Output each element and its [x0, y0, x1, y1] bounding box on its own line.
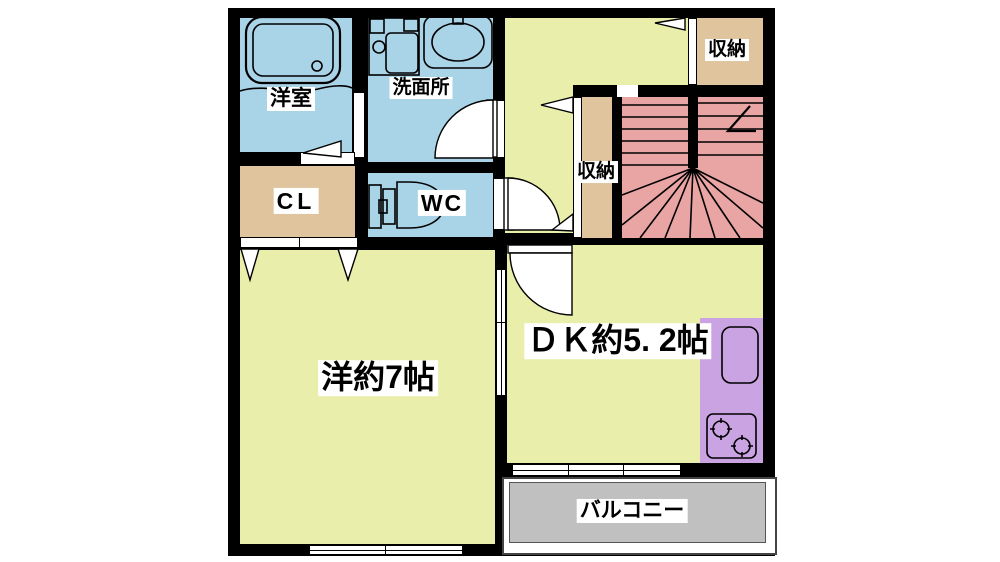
room-label-wc: WC [418, 190, 466, 216]
closet-sliding-door [240, 237, 358, 248]
room-label-storage-top: 収納 [705, 39, 749, 61]
window-line [501, 270, 502, 395]
room-western [240, 250, 495, 544]
room-label-balcony: バルコニー [577, 499, 688, 523]
room-bath [240, 18, 352, 152]
room-label-bath: 洋室 [267, 87, 315, 111]
hallway-top [505, 18, 688, 85]
room-label-storage-hall: 収納 [574, 161, 618, 183]
window-tick [568, 465, 569, 475]
room-label-western-room: 洋約7帖 [318, 360, 438, 396]
floor-plan: 洋室 洗面所 収納 CL WC 収納 洋約7帖 ＤＫ約5. 2帖 バルコニー [0, 0, 1000, 562]
window-dk-balcony [513, 463, 680, 477]
hallway-mid [505, 85, 573, 233]
room-label-washroom: 洗面所 [389, 77, 452, 99]
room-label-dk: ＤＫ約5. 2帖 [524, 323, 711, 359]
stair-top-gap [617, 85, 638, 97]
bath-washroom-door [353, 92, 365, 158]
stair-center-wall [688, 97, 698, 168]
window-line [310, 550, 462, 551]
washroom-door-gap [493, 100, 505, 158]
room-label-closet: CL [274, 188, 319, 214]
window-tick [623, 465, 624, 475]
window-west-room-bottom [310, 544, 462, 556]
wc-door-gap [493, 178, 505, 230]
storage-top-door [688, 18, 697, 85]
door-divider [299, 238, 300, 247]
window-tick [385, 545, 386, 555]
window-tick [496, 322, 506, 323]
bath-bottom-door [300, 152, 355, 165]
window-line [513, 470, 680, 471]
window-partition [495, 270, 507, 395]
